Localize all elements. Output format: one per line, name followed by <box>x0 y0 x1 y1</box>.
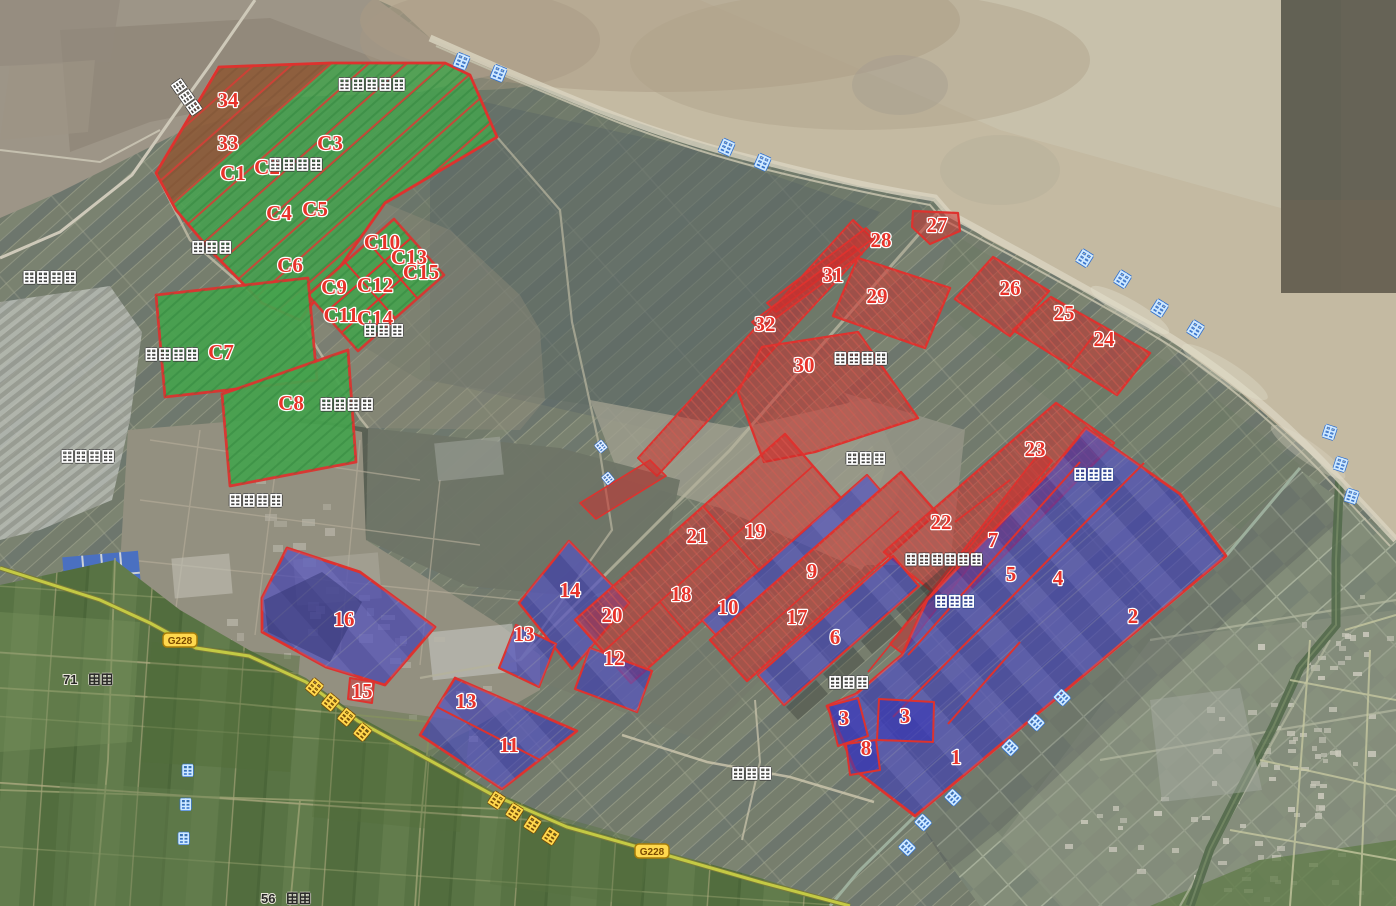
svg-text:26: 26 <box>1000 276 1021 300</box>
svg-text:C3: C3 <box>317 131 343 155</box>
svg-text:4: 4 <box>1053 566 1064 590</box>
svg-text:28: 28 <box>871 228 892 252</box>
svg-text:G228: G228 <box>640 847 665 858</box>
svg-text:71: 71 <box>63 672 77 687</box>
svg-text:5: 5 <box>1006 562 1017 586</box>
svg-text:13: 13 <box>514 622 535 646</box>
svg-text:C7: C7 <box>208 340 234 364</box>
svg-text:C4: C4 <box>266 201 292 225</box>
svg-text:33: 33 <box>218 131 239 155</box>
svg-text:24: 24 <box>1094 327 1116 351</box>
svg-text:C6: C6 <box>277 253 303 277</box>
svg-text:19: 19 <box>745 519 766 543</box>
svg-text:3: 3 <box>900 704 911 728</box>
svg-text:C12: C12 <box>357 273 393 297</box>
svg-text:1: 1 <box>951 745 962 769</box>
svg-text:30: 30 <box>794 353 815 377</box>
svg-text:11: 11 <box>499 733 519 757</box>
svg-text:20: 20 <box>602 603 623 627</box>
svg-text:18: 18 <box>671 582 692 606</box>
svg-text:2: 2 <box>1128 604 1139 628</box>
svg-text:6: 6 <box>830 625 841 649</box>
svg-text:56: 56 <box>261 891 275 906</box>
svg-text:7: 7 <box>988 528 999 552</box>
svg-text:C1: C1 <box>220 161 246 185</box>
svg-text:C5: C5 <box>302 197 328 221</box>
svg-text:27: 27 <box>927 213 948 237</box>
svg-text:C9: C9 <box>321 275 347 299</box>
svg-text:8: 8 <box>861 736 872 760</box>
svg-text:25: 25 <box>1054 301 1075 325</box>
svg-text:12: 12 <box>604 646 625 670</box>
svg-text:23: 23 <box>1025 437 1046 461</box>
svg-text:15: 15 <box>352 679 373 703</box>
svg-text:31: 31 <box>823 263 844 287</box>
svg-text:16: 16 <box>334 607 355 631</box>
svg-text:9: 9 <box>807 559 818 583</box>
svg-text:22: 22 <box>931 510 952 534</box>
svg-text:29: 29 <box>867 284 888 308</box>
svg-text:21: 21 <box>687 524 708 548</box>
svg-text:32: 32 <box>755 312 776 336</box>
svg-text:3: 3 <box>839 706 850 730</box>
svg-text:13: 13 <box>456 689 477 713</box>
svg-text:17: 17 <box>787 605 808 629</box>
svg-text:34: 34 <box>218 88 240 112</box>
svg-text:14: 14 <box>560 578 582 602</box>
svg-text:C15: C15 <box>403 260 439 284</box>
svg-text:G228: G228 <box>168 636 193 647</box>
svg-text:10: 10 <box>718 595 739 619</box>
svg-text:C8: C8 <box>278 391 304 415</box>
svg-text:C11: C11 <box>323 303 358 327</box>
